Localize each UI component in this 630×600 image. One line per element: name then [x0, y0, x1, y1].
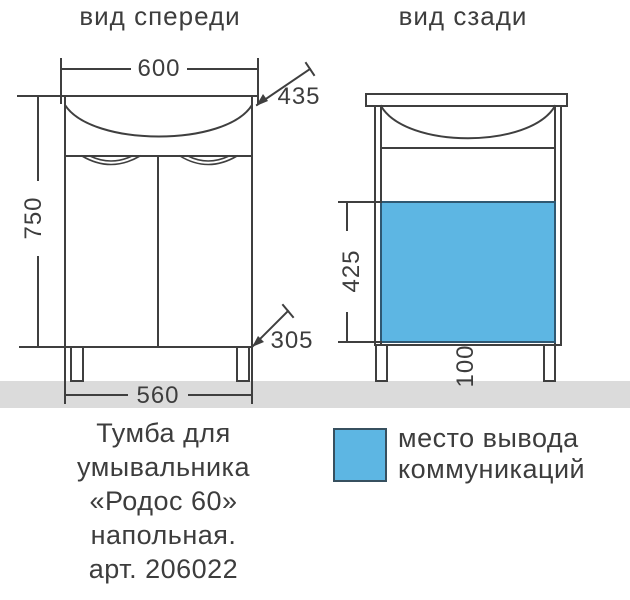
left-door-handle [82, 156, 140, 165]
dim-750-value: 750 [20, 178, 44, 258]
dim-435-value: 435 [272, 83, 326, 111]
back-view-title: вид сзади [348, 1, 578, 32]
front-right-leg [237, 347, 249, 381]
caption-line-5: арт. 206022 [21, 552, 306, 586]
dim-600-value: 600 [129, 55, 189, 83]
legend-label: место вывода коммуникаций [398, 423, 585, 485]
dim-560-value: 560 [128, 382, 188, 410]
legend-blue-swatch [333, 428, 387, 482]
back-countertop [366, 94, 567, 106]
caption-line-4: напольная. [21, 518, 306, 552]
back-left-leg [376, 345, 387, 381]
right-door-handle [180, 156, 237, 165]
front-sink-curve [65, 96, 252, 137]
back-right-leg [544, 345, 555, 381]
caption-line-3: «Родос 60» [21, 484, 306, 518]
front-view-title: вид спереди [40, 1, 280, 32]
front-left-leg [71, 347, 83, 381]
product-dimension-diagram: вид спереди вид сзади 600 435 750 305 56… [0, 0, 630, 600]
back-sink-curve [381, 106, 555, 138]
dim-425-value: 425 [338, 231, 362, 311]
caption-line-1: Тумба для [21, 416, 306, 450]
dim-100-value: 100 [452, 326, 476, 406]
dim-305-value: 305 [266, 327, 318, 355]
leader-435-tick [306, 63, 314, 75]
legend-label-line-1: место вывода [398, 423, 585, 454]
caption-line-2: умывальника [21, 450, 306, 484]
communications-area [381, 202, 555, 342]
product-caption: Тумба для умывальника «Родос 60» напольн… [21, 416, 306, 586]
legend-label-line-2: коммуникаций [398, 454, 585, 485]
